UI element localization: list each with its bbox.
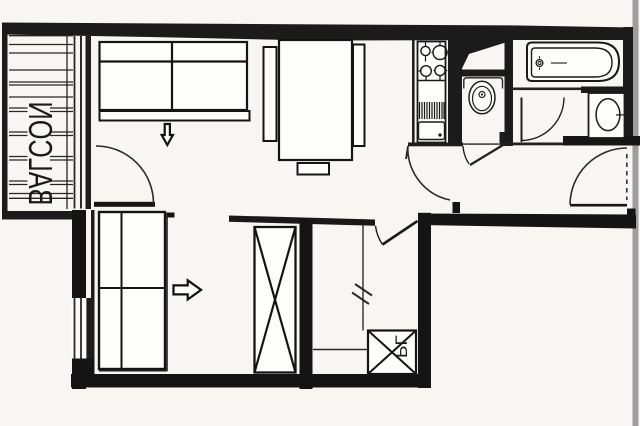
svg-text:PL: PL: [392, 335, 411, 358]
svg-text:BALCON: BALCON: [22, 102, 59, 206]
